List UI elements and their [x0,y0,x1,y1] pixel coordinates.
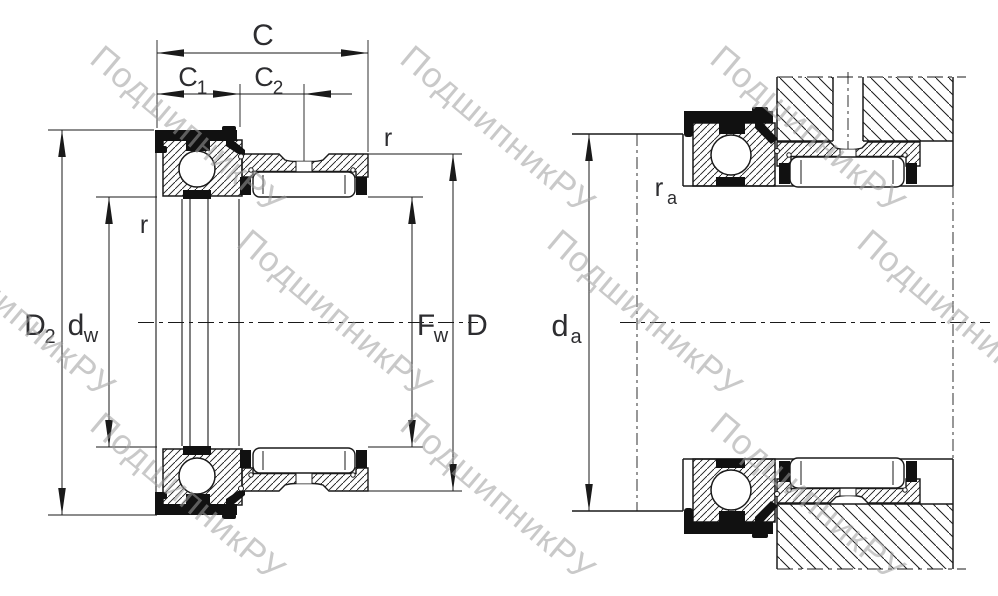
label-D2-sub: 2 [44,326,55,348]
right-drawing: r a d a [551,72,990,569]
inner-ring-top [183,141,211,199]
label-D2: D [24,309,46,342]
label-ra-sub: a [667,188,678,208]
label-Fw-sub: w [433,325,449,347]
extension-lines [48,40,462,515]
label-C: C [252,19,274,52]
label-C2: C [254,62,274,92]
label-r-left: r [140,211,148,239]
label-C2-sub: 2 [273,78,284,99]
label-da: d [551,308,568,343]
dimension-lines [62,53,453,515]
label-dw: d [68,309,85,342]
left-drawing: C C 1 C 2 r r D 2 d w F w D [24,19,488,519]
label-r-top: r [384,124,392,152]
label-D: D [466,309,488,342]
label-da-sub: a [570,326,582,348]
label-C1: C [178,62,198,92]
drawing-canvas: C C 1 C 2 r r D 2 d w F w D [0,0,998,596]
inner-ring-bottom [183,446,211,504]
label-dw-sub: w [83,325,99,347]
bearing-technical-drawing: C C 1 C 2 r r D 2 d w F w D [0,0,998,596]
dimension-arrowheads [58,49,457,515]
right-dimension-labels: r a d a [551,172,678,348]
housing-bottom [777,504,966,569]
da-dimension [585,134,593,511]
label-Fw: F [417,309,435,342]
label-C1-sub: 1 [197,78,208,99]
label-ra: r [655,172,664,202]
